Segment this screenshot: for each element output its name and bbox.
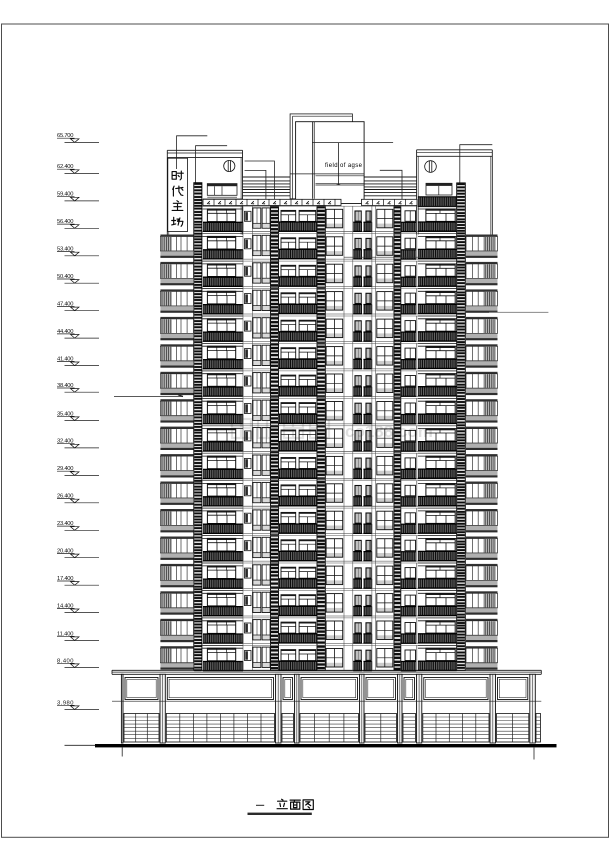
svg-text:field of agse: field of agse [325,163,363,169]
